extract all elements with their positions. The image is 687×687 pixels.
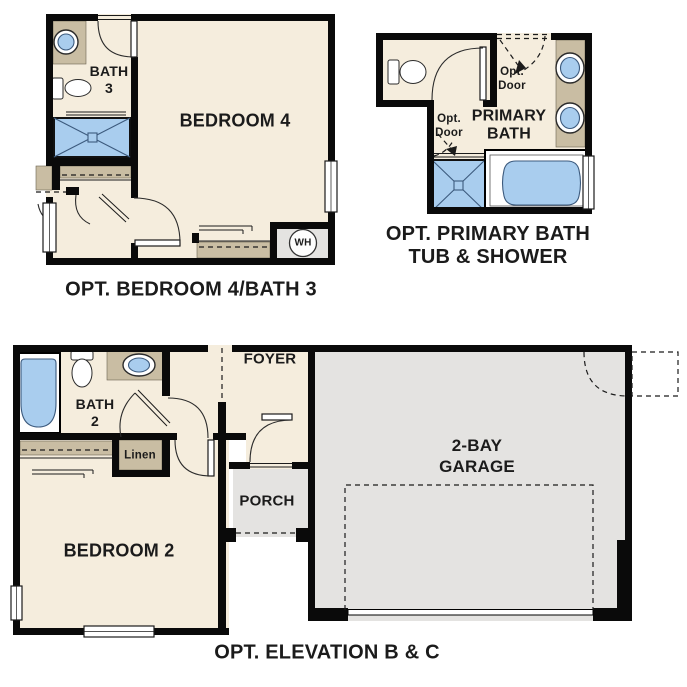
- plan-bedroom4-bath3: [36, 14, 337, 265]
- bedroom-closet: [197, 242, 270, 258]
- garage-door: [348, 610, 593, 616]
- room-label-bedroom4: BEDROOM 4: [180, 111, 291, 132]
- closet-shelf: [36, 166, 52, 190]
- floorplan-sheet: BATH3 BEDROOM 4 WH OPT. BEDROOM 4/BATH 3…: [0, 0, 687, 687]
- shower-icon: [432, 154, 485, 212]
- floorplan-drawing: [0, 0, 687, 687]
- closet-shelf: [60, 166, 131, 178]
- plan-elevation-bc: [11, 345, 678, 637]
- room-label-primary-bath: PRIMARYBATH: [472, 108, 547, 145]
- floor-areas: [13, 345, 632, 635]
- sink-icon: [123, 354, 155, 376]
- caption-bedroom4-bath3: OPT. BEDROOM 4/BATH 3: [65, 279, 317, 302]
- front-door: [262, 414, 292, 420]
- toilet-icon: [388, 60, 426, 84]
- garage-floor: [308, 345, 632, 621]
- toilet-icon: [71, 351, 93, 387]
- sink-icon: [54, 30, 78, 54]
- room-label-bedroom2: BEDROOM 2: [64, 541, 175, 562]
- window: [583, 156, 594, 209]
- room-label-garage: 2-BAYGARAGE: [439, 435, 515, 478]
- room-label-linen: Linen: [124, 449, 156, 462]
- room-label-bath2: BATH2: [76, 396, 115, 430]
- wardrobe-closet: [20, 441, 113, 455]
- tub-icon: [17, 353, 60, 433]
- shower-icon: [54, 112, 130, 157]
- caption-primary-bath: OPT. PRIMARY BATHTUB & SHOWER: [386, 223, 590, 269]
- opt-door-label-top: Opt.Door: [498, 66, 526, 94]
- room-label-foyer: FOYER: [244, 350, 297, 367]
- opt-garage-stoop: [632, 352, 678, 396]
- caption-elevation-bc: OPT. ELEVATION B & C: [214, 642, 440, 665]
- tub-icon: [485, 150, 588, 211]
- room-label-bath3: BATH3: [90, 63, 129, 97]
- water-heater-label: WH: [294, 237, 311, 249]
- room-label-porch: PORCH: [239, 492, 294, 509]
- opt-door-label-side: Opt.Door: [435, 113, 463, 141]
